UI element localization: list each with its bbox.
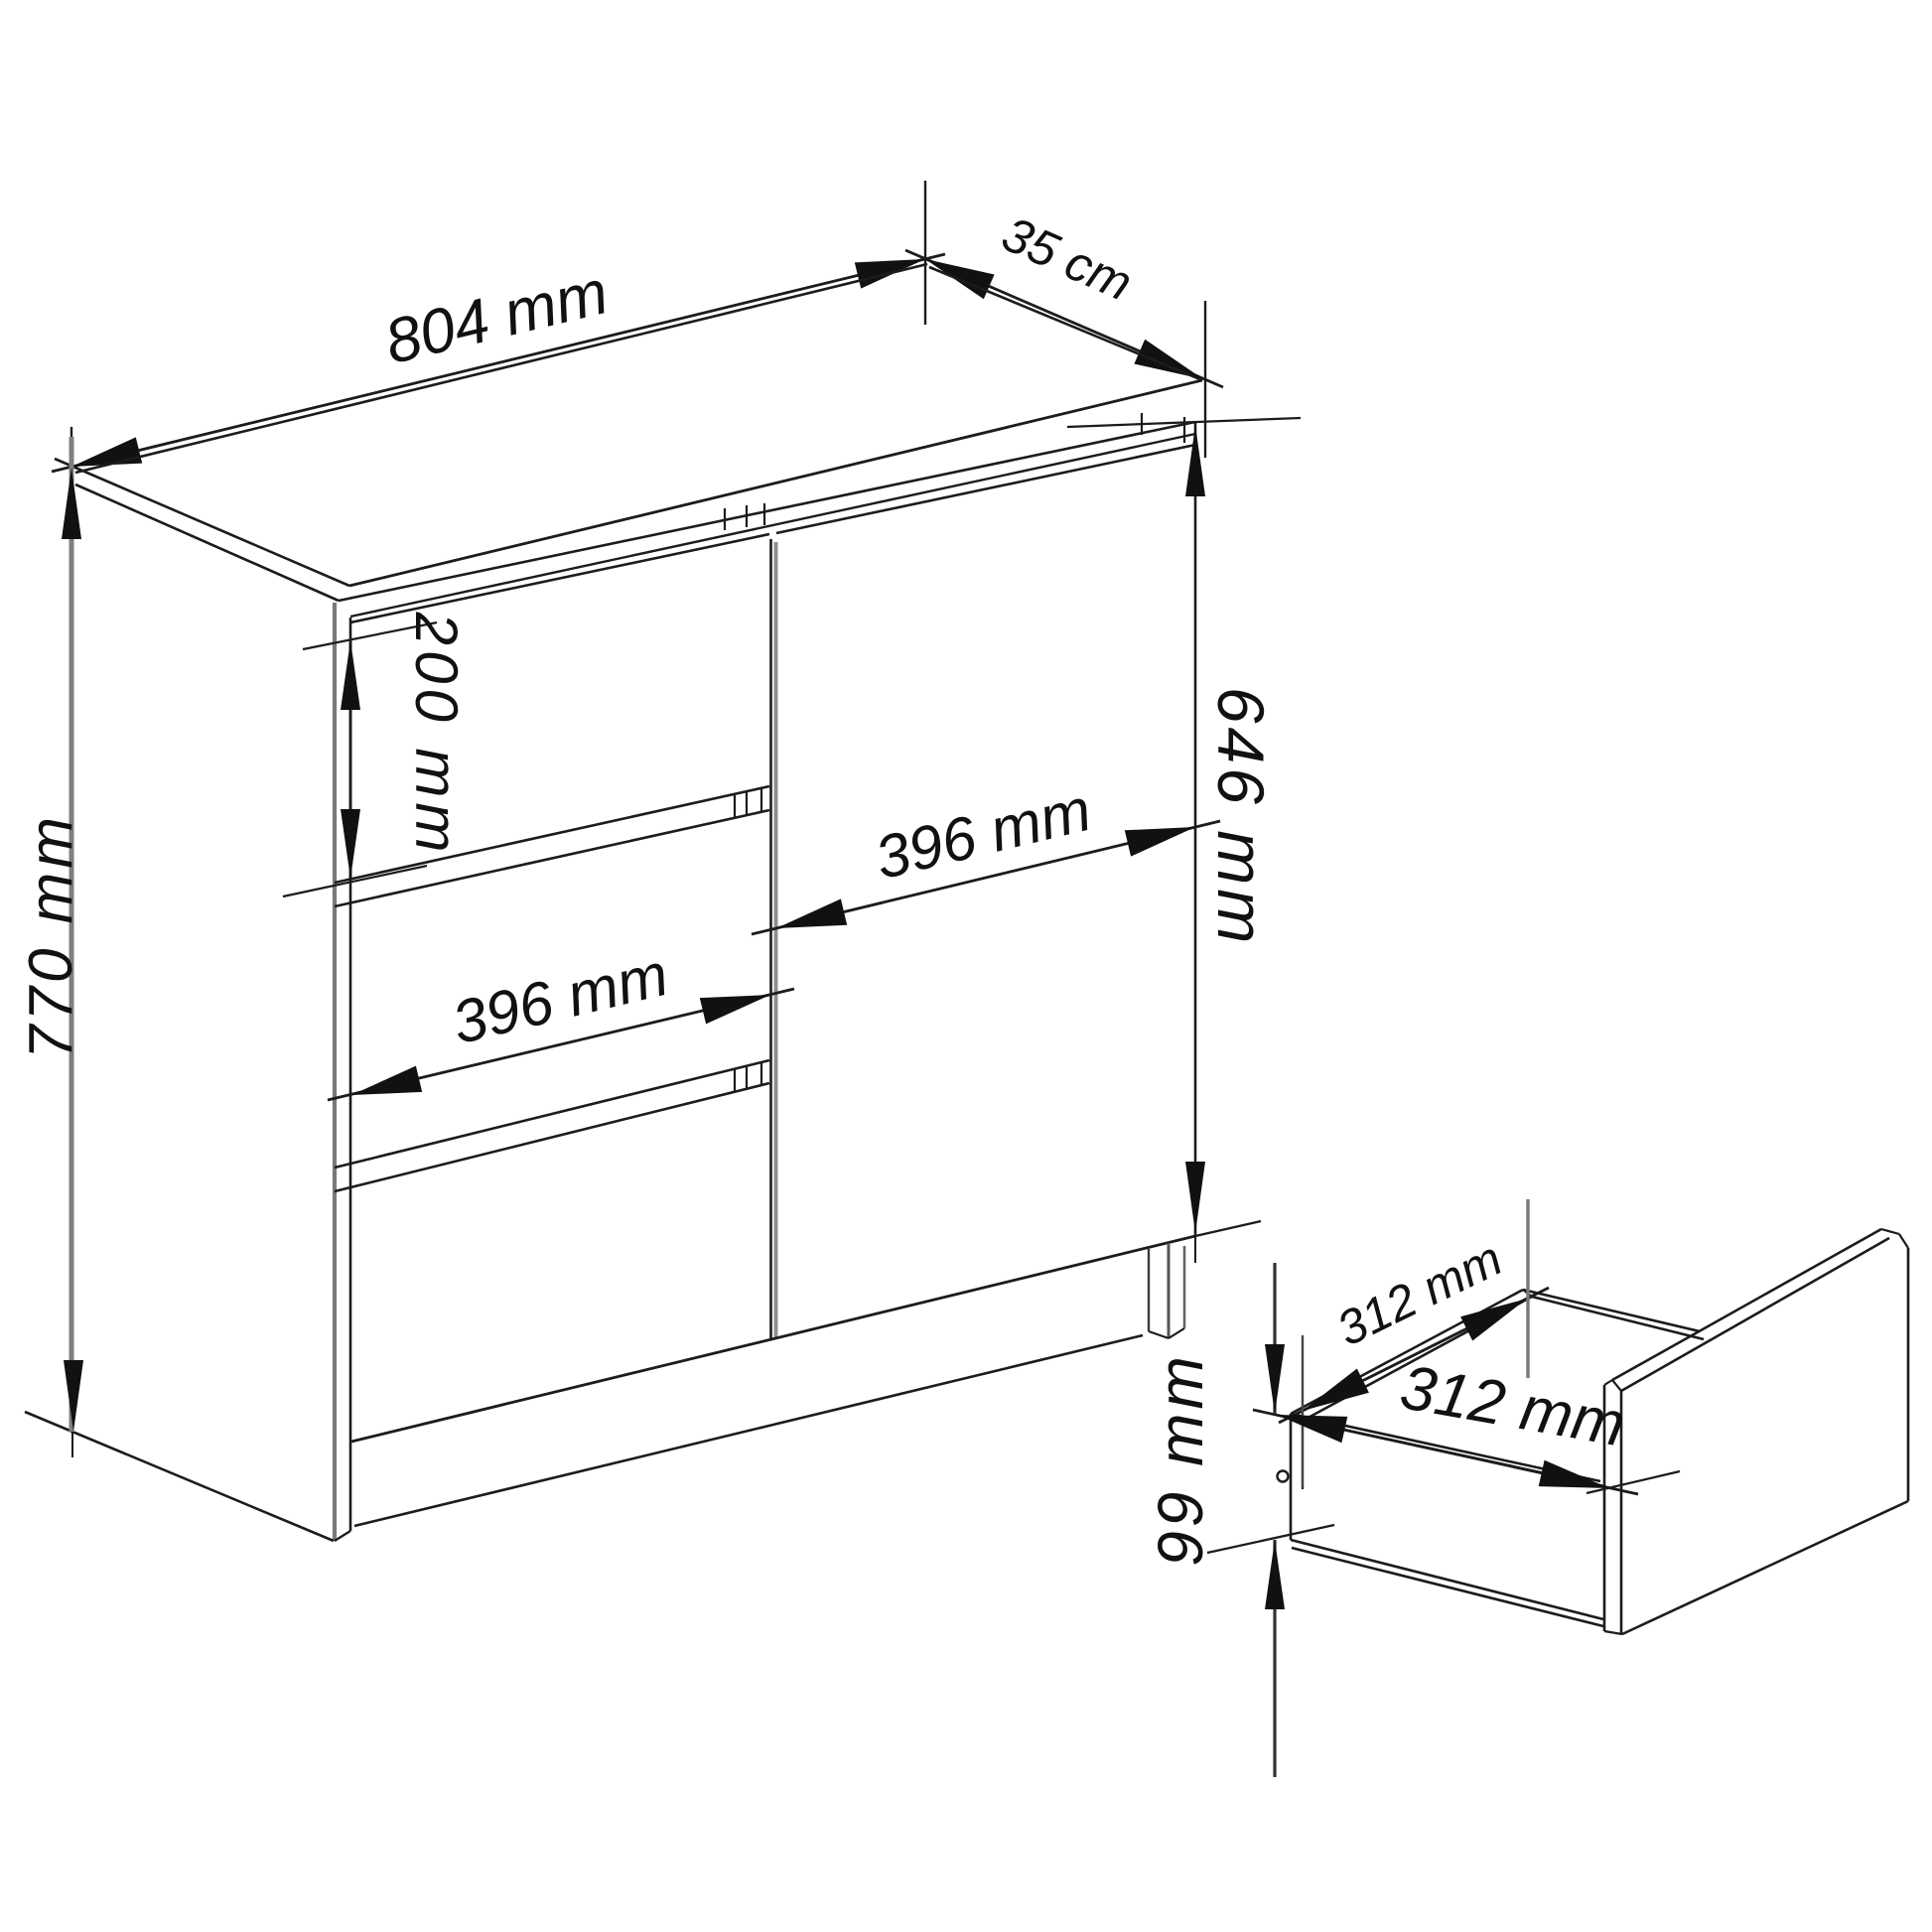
svg-text:99 mm: 99 mm: [1145, 1352, 1216, 1567]
svg-text:646 mm: 646 mm: [1204, 687, 1278, 947]
svg-text:770 mm: 770 mm: [17, 813, 85, 1059]
svg-text:200 mm: 200 mm: [403, 612, 470, 858]
